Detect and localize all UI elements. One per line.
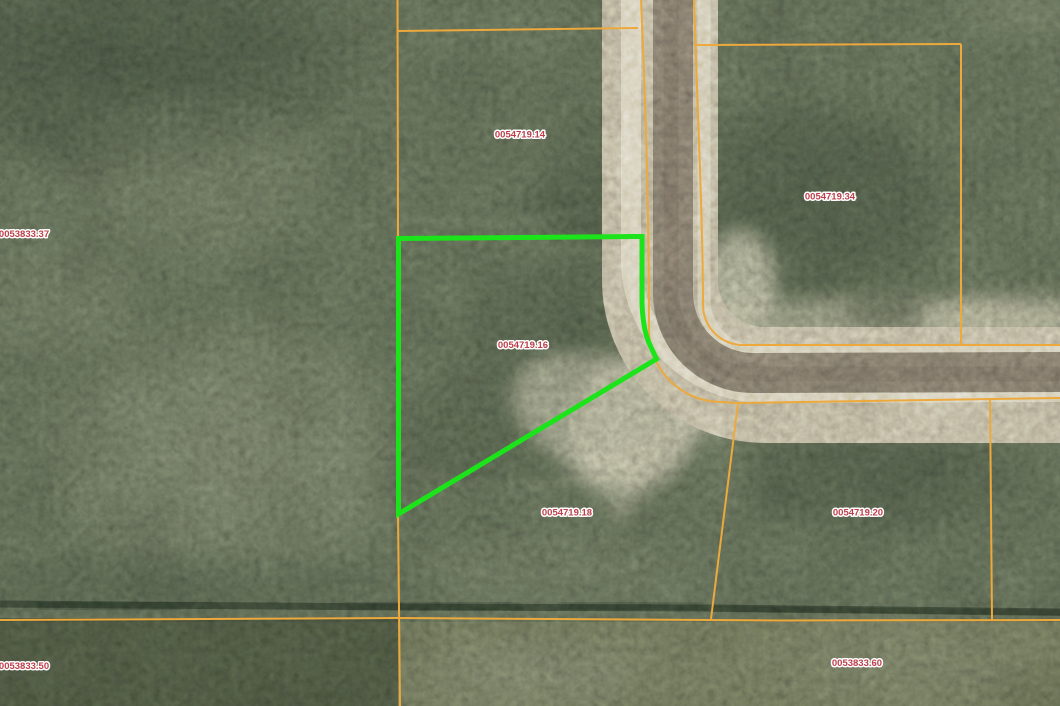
svg-text:0054719.16: 0054719.16 xyxy=(498,340,548,351)
svg-text:0053833.60: 0053833.60 xyxy=(832,658,882,669)
svg-text:0053833.50: 0053833.50 xyxy=(0,661,49,672)
svg-text:0054719.18: 0054719.18 xyxy=(542,508,592,519)
svg-text:0053833.37: 0053833.37 xyxy=(0,229,49,240)
svg-text:0054719.20: 0054719.20 xyxy=(833,508,883,519)
svg-text:0054719.14: 0054719.14 xyxy=(495,130,546,141)
svg-text:0054719.34: 0054719.34 xyxy=(805,192,856,203)
